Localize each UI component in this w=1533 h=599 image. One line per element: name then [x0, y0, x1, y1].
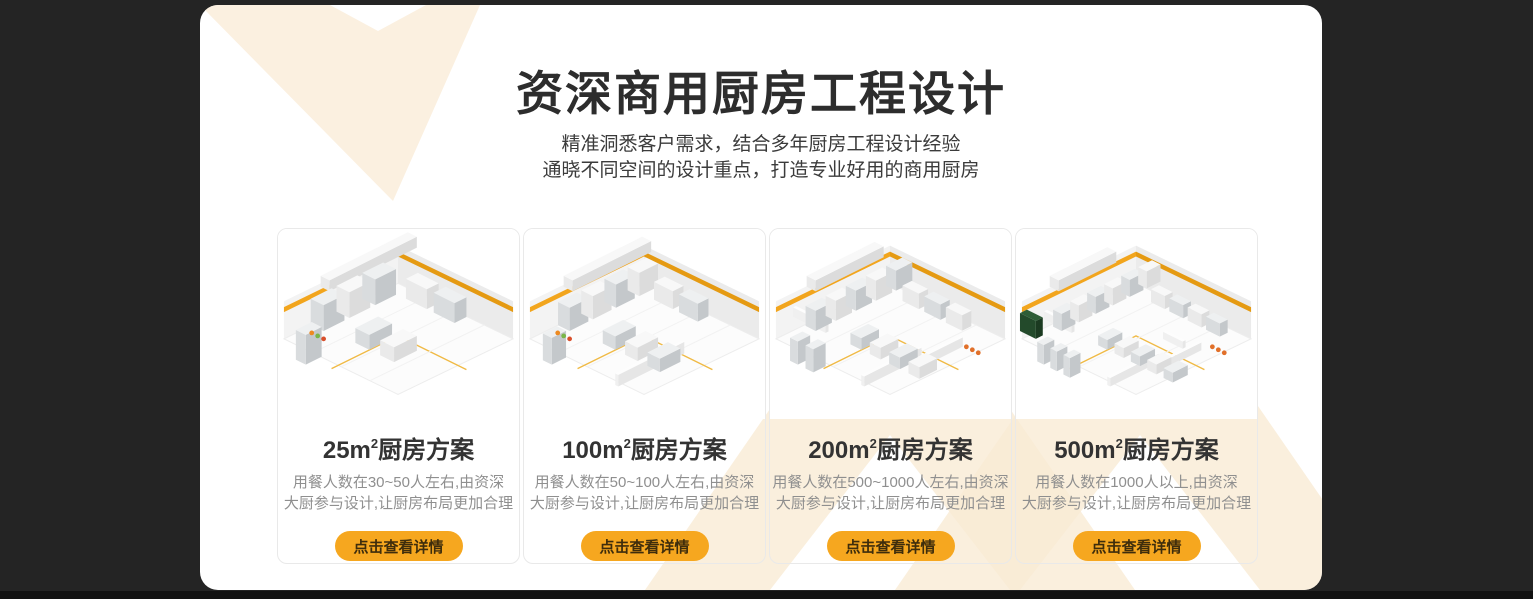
plan-size: 100m: [562, 437, 623, 464]
plan-description-line-2: 大厨参与设计,让厨房布局更加合理: [770, 493, 1011, 514]
plan-description: 用餐人数在30~50人左右,由资深 大厨参与设计,让厨房布局更加合理: [278, 472, 519, 514]
plan-description-line-2: 大厨参与设计,让厨房布局更加合理: [524, 493, 765, 514]
plan-size: 25m: [323, 437, 371, 464]
plan-description-line-1: 用餐人数在1000人以上,由资深: [1016, 472, 1257, 493]
plan-title: 25m2厨房方案: [278, 430, 519, 465]
plan-card-200m2[interactable]: 200m2厨房方案 用餐人数在500~1000人左右,由资深 大厨参与设计,让厨…: [769, 228, 1012, 564]
plan-title-suffix: 厨房方案: [877, 437, 973, 464]
plan-size: 500m: [1054, 437, 1115, 464]
view-details-button[interactable]: 点击查看详情: [827, 531, 955, 561]
kitchen-render-image-100m2: [524, 229, 765, 419]
plan-description: 用餐人数在1000人以上,由资深 大厨参与设计,让厨房布局更加合理: [1016, 472, 1257, 514]
plan-card-100m2[interactable]: 100m2厨房方案 用餐人数在50~100人左右,由资深 大厨参与设计,让厨房布…: [523, 228, 766, 564]
kitchen-render-image-500m2: [1016, 229, 1257, 419]
plan-size-sup: 2: [371, 436, 378, 451]
subtitle-line-2: 通晓不同空间的设计重点，打造专业好用的商用厨房: [200, 158, 1322, 184]
content-panel: 资深商用厨房工程设计 精准洞悉客户需求，结合多年厨房工程设计经验 通晓不同空间的…: [200, 5, 1322, 590]
plan-title-suffix: 厨房方案: [631, 437, 727, 464]
plan-card-body: 100m2厨房方案 用餐人数在50~100人左右,由资深 大厨参与设计,让厨房布…: [524, 430, 765, 561]
plan-description-line-2: 大厨参与设计,让厨房布局更加合理: [1016, 493, 1257, 514]
plan-cards-row: 25m2厨房方案 用餐人数在30~50人左右,由资深 大厨参与设计,让厨房布局更…: [277, 228, 1258, 566]
plan-card-body: 200m2厨房方案 用餐人数在500~1000人左右,由资深 大厨参与设计,让厨…: [770, 430, 1011, 561]
plan-card-body: 500m2厨房方案 用餐人数在1000人以上,由资深 大厨参与设计,让厨房布局更…: [1016, 430, 1257, 561]
kitchen-render-image-25m2: [278, 229, 519, 419]
page-background: 资深商用厨房工程设计 精准洞悉客户需求，结合多年厨房工程设计经验 通晓不同空间的…: [0, 0, 1533, 599]
plan-description-line-1: 用餐人数在30~50人左右,由资深: [278, 472, 519, 493]
plan-description: 用餐人数在500~1000人左右,由资深 大厨参与设计,让厨房布局更加合理: [770, 472, 1011, 514]
plan-title: 100m2厨房方案: [524, 430, 765, 465]
plan-card-25m2[interactable]: 25m2厨房方案 用餐人数在30~50人左右,由资深 大厨参与设计,让厨房布局更…: [277, 228, 520, 564]
plan-size-sup: 2: [624, 436, 631, 451]
plan-card-500m2[interactable]: 500m2厨房方案 用餐人数在1000人以上,由资深 大厨参与设计,让厨房布局更…: [1015, 228, 1258, 564]
plan-size-sup: 2: [1116, 436, 1123, 451]
next-section-edge: [0, 591, 1533, 599]
plan-description-line-1: 用餐人数在50~100人左右,由资深: [524, 472, 765, 493]
plan-title-suffix: 厨房方案: [1123, 437, 1219, 464]
view-details-button[interactable]: 点击查看详情: [1073, 531, 1201, 561]
plan-title-suffix: 厨房方案: [378, 437, 474, 464]
plan-size: 200m: [808, 437, 869, 464]
plan-description: 用餐人数在50~100人左右,由资深 大厨参与设计,让厨房布局更加合理: [524, 472, 765, 514]
plan-size-sup: 2: [870, 436, 877, 451]
plan-description-line-2: 大厨参与设计,让厨房布局更加合理: [278, 493, 519, 514]
subtitle-line-1: 精准洞悉客户需求，结合多年厨房工程设计经验: [200, 132, 1322, 158]
kitchen-render-image-200m2: [770, 229, 1011, 419]
plan-description-line-1: 用餐人数在500~1000人左右,由资深: [770, 472, 1011, 493]
plan-title: 500m2厨房方案: [1016, 430, 1257, 465]
plan-title: 200m2厨房方案: [770, 430, 1011, 465]
plan-card-body: 25m2厨房方案 用餐人数在30~50人左右,由资深 大厨参与设计,让厨房布局更…: [278, 430, 519, 561]
view-details-button[interactable]: 点击查看详情: [335, 531, 463, 561]
view-details-button[interactable]: 点击查看详情: [581, 531, 709, 561]
section-title: 资深商用厨房工程设计: [200, 55, 1322, 124]
section-subtitle: 精准洞悉客户需求，结合多年厨房工程设计经验 通晓不同空间的设计重点，打造专业好用…: [200, 132, 1322, 184]
